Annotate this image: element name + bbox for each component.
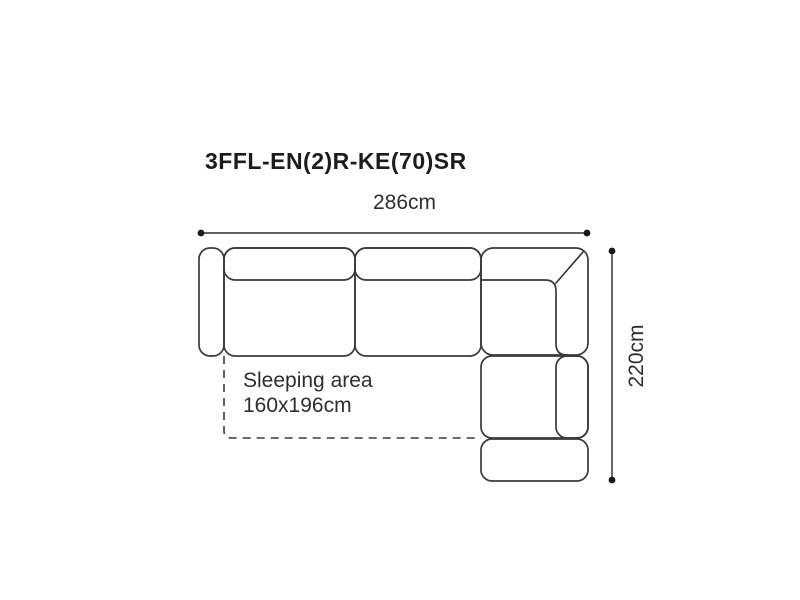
corner-backrest-diagonal: [556, 252, 583, 283]
width-dimension-dot-left: [198, 230, 205, 237]
end-ottoman: [481, 439, 588, 481]
left-armrest: [199, 248, 224, 356]
sofa-top-view-diagram: [0, 0, 800, 600]
width-dimension-dot-right: [584, 230, 591, 237]
corner-backrest-inner-edge: [481, 280, 567, 355]
width-dimension-line: [198, 230, 591, 237]
seat-2-backrest: [355, 248, 481, 280]
seat-1-backrest: [224, 248, 355, 280]
height-dimension-line: [609, 248, 616, 484]
height-dimension-dot-bottom: [609, 477, 616, 484]
diagram-canvas: 3FFL-EN(2)R-KE(70)SR 286cm 220cm Sleepin…: [0, 0, 800, 600]
sleeping-area-dashed-boundary: [224, 356, 481, 438]
right-seat-section: [481, 356, 588, 438]
right-seat-backrest: [556, 356, 588, 438]
seat-section-2: [355, 248, 481, 356]
seat-section-1: [224, 248, 355, 356]
sofa-outline: [199, 248, 588, 481]
height-dimension-dot-top: [609, 248, 616, 255]
